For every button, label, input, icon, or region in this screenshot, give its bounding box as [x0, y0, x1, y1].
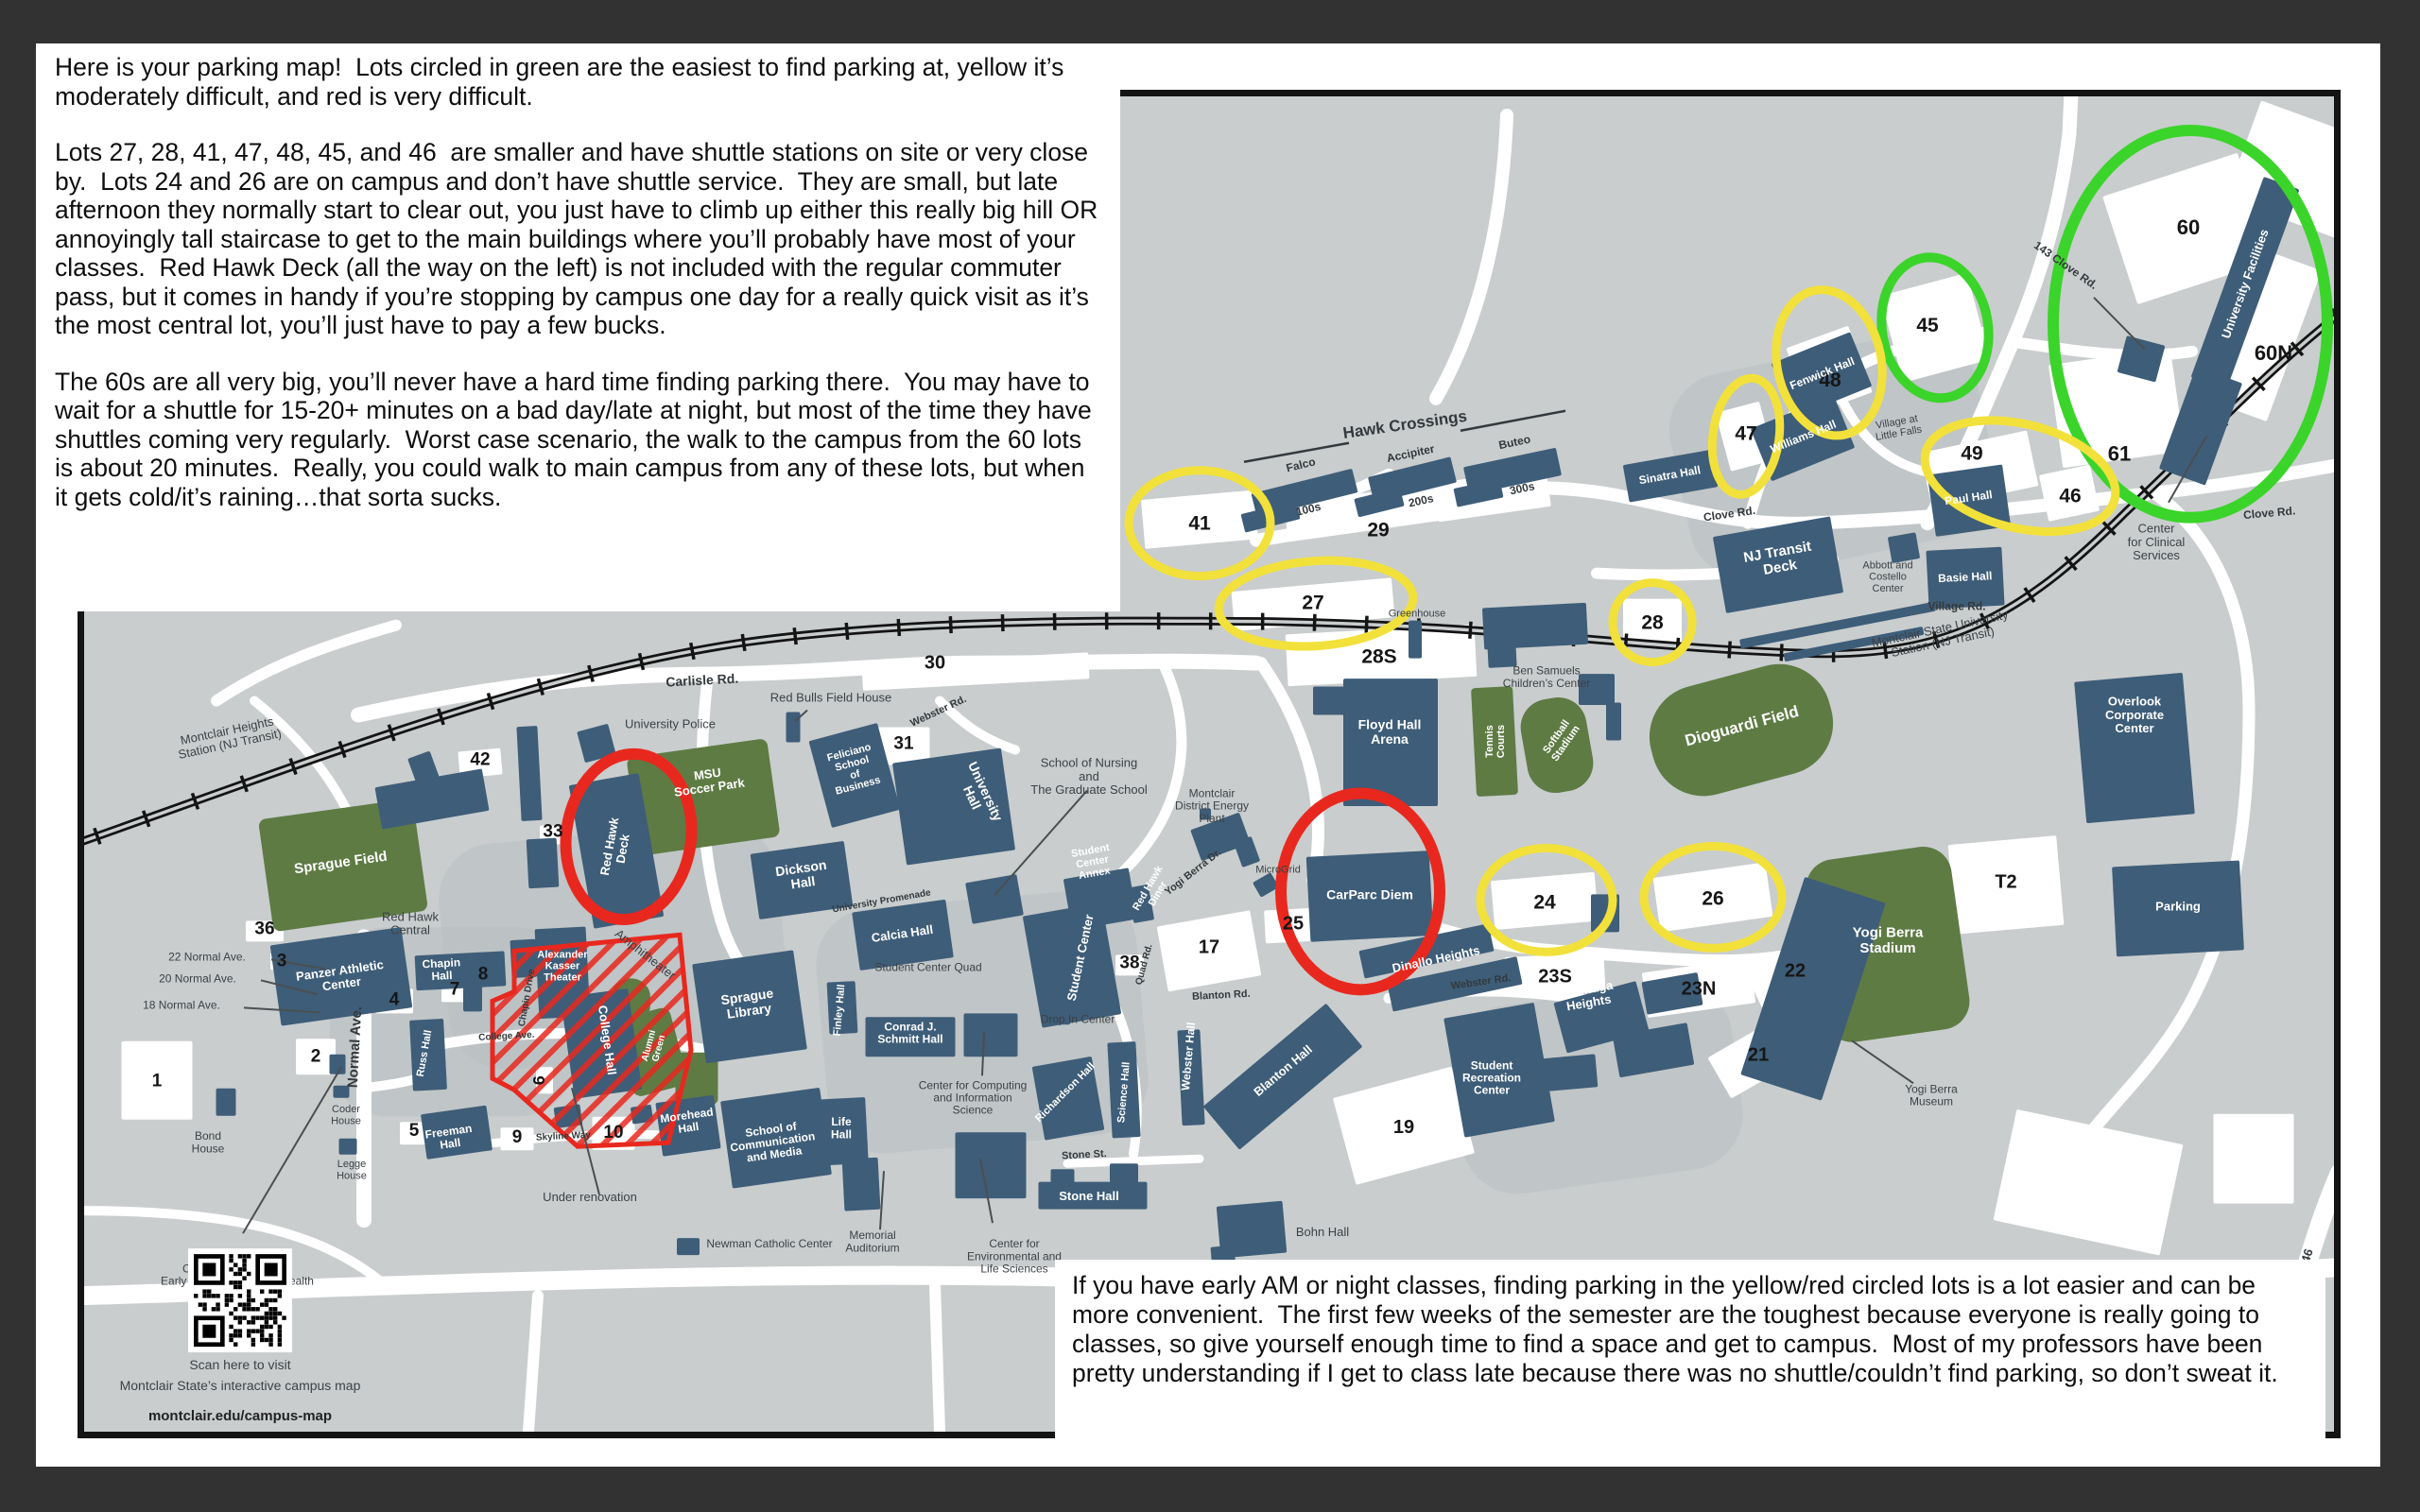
qr-module — [268, 1307, 272, 1311]
qr-module — [273, 1289, 277, 1293]
qr-module — [247, 1302, 251, 1306]
label-25: 25 — [1283, 913, 1304, 934]
qr-module — [265, 1338, 268, 1342]
qr-module — [238, 1285, 242, 1289]
qr-module — [265, 1312, 268, 1315]
qr-module — [233, 1333, 237, 1337]
qr-module — [247, 1320, 251, 1324]
qr-module — [202, 1294, 206, 1297]
qr-module — [278, 1333, 282, 1337]
qr-module — [273, 1307, 277, 1311]
qr-module — [216, 1294, 219, 1297]
label-yogi-berra: Yogi BerraMuseum — [1905, 1082, 1958, 1108]
building — [527, 838, 560, 889]
railroad-tie — [1470, 622, 1471, 639]
qr-module — [216, 1302, 219, 1306]
railroad-tie — [846, 623, 847, 640]
label-60: 60 — [2177, 215, 2200, 239]
note-top-left: Here is your parking map! Lots circled i… — [36, 43, 1120, 611]
label-microgrid: MicroGrid — [1255, 864, 1301, 875]
qr-module — [273, 1312, 277, 1315]
label-university-police: University Police — [625, 717, 716, 731]
qr-module — [229, 1325, 233, 1329]
label-memorial: MemorialAuditorium — [845, 1228, 899, 1254]
qr-module — [238, 1315, 242, 1319]
label-9: 9 — [512, 1127, 523, 1147]
qr-module — [242, 1315, 246, 1319]
qr-module — [229, 1338, 233, 1342]
building — [1051, 1169, 1075, 1186]
qr-module — [265, 1315, 268, 1319]
railroad-tie — [1314, 614, 1315, 631]
label-23s: 23S — [1538, 966, 1572, 987]
label-20-normal-ave: 20 Normal Ave. — [159, 971, 236, 985]
qr-module — [229, 1254, 233, 1258]
label-4: 4 — [389, 989, 400, 1009]
note-bottom-right: If you have early AM or night classes, f… — [1055, 1260, 2325, 1454]
qr-module — [238, 1329, 242, 1332]
note-paragraph: The 60s are all very big, you’ll never h… — [55, 368, 1101, 512]
label-newman-catholic-center: Newman Catholic Center — [706, 1237, 832, 1250]
qr-module — [273, 1315, 277, 1319]
qr-module — [278, 1294, 282, 1297]
qr-module — [247, 1294, 251, 1297]
label-parking: Parking — [2155, 899, 2201, 913]
label-41: 41 — [1188, 513, 1211, 535]
qr-module — [229, 1333, 233, 1337]
label-18-normal-ave: 18 Normal Ave. — [143, 998, 220, 1011]
label-29: 29 — [1367, 520, 1389, 541]
qr-module — [242, 1263, 246, 1266]
building — [677, 1238, 700, 1255]
qr-module — [251, 1320, 255, 1324]
qr-module — [212, 1294, 216, 1297]
label-24: 24 — [1533, 891, 1556, 913]
qr-module — [238, 1333, 242, 1337]
label-61: 61 — [2108, 442, 2131, 466]
qr-module — [229, 1294, 233, 1297]
label-46: 46 — [2059, 486, 2081, 507]
qr-module — [242, 1267, 246, 1271]
building — [1606, 703, 1621, 741]
building — [339, 1139, 357, 1155]
label-life: LifeHall — [831, 1115, 852, 1141]
qr-module — [260, 1325, 264, 1329]
qr-module — [268, 1325, 272, 1329]
qr-module — [278, 1312, 282, 1315]
qr-module — [278, 1325, 282, 1329]
qr-module — [242, 1276, 246, 1280]
label-t2: T2 — [1995, 871, 2016, 892]
label-3: 3 — [277, 951, 287, 971]
qr-module — [268, 1338, 272, 1342]
qr-module — [207, 1289, 211, 1293]
qr-module — [229, 1267, 233, 1271]
building — [1110, 1163, 1138, 1182]
qr-module — [233, 1315, 237, 1319]
label-under-renovation: Under renovation — [543, 1190, 637, 1204]
qr-module — [251, 1338, 255, 1342]
label-36: 36 — [254, 919, 274, 938]
label-coder: CoderHouse — [331, 1104, 361, 1126]
label-ben-samuels: Ben SamuelsChildren’s Center — [1503, 664, 1590, 690]
qr-module — [247, 1298, 251, 1302]
qr-module — [268, 1298, 272, 1302]
building — [965, 874, 1024, 924]
qr-module — [247, 1307, 251, 1311]
qr-module — [268, 1333, 272, 1337]
railroad-tie — [1002, 614, 1003, 631]
qr-module — [247, 1333, 251, 1337]
qr-module — [265, 1298, 268, 1302]
qr-module — [202, 1302, 206, 1306]
label-47: 47 — [1735, 423, 1756, 445]
building — [330, 1055, 346, 1074]
qr-module — [225, 1294, 229, 1297]
note-paragraph: Lots 27, 28, 41, 47, 48, 45, and 46 are … — [55, 138, 1101, 340]
parking-lot-shape — [2214, 1114, 2294, 1204]
note-paragraph: If you have early AM or night classes, f… — [1072, 1271, 2308, 1388]
building — [216, 1089, 236, 1116]
label-7: 7 — [450, 979, 460, 999]
qr-finder — [265, 1263, 278, 1276]
railroad-tie — [1781, 644, 1782, 661]
qr-module — [199, 1302, 202, 1306]
building — [1482, 603, 1588, 650]
railroad-tie — [950, 616, 951, 633]
qr-module — [251, 1315, 255, 1319]
qr-module — [265, 1302, 268, 1306]
qr-module — [255, 1315, 259, 1319]
paper-sheet: Hawk CrossingsFalcoAccipiterButeo100s200… — [36, 43, 2380, 1467]
qr-module — [229, 1280, 233, 1284]
qr-module — [278, 1338, 282, 1342]
qr-module — [260, 1338, 264, 1342]
label-22: 22 — [1785, 960, 1806, 981]
label-49: 49 — [1961, 443, 1982, 465]
building — [964, 1013, 1018, 1057]
railroad-tie — [1729, 642, 1730, 659]
qr-module — [242, 1307, 246, 1311]
label-23n: 23N — [1682, 978, 1717, 999]
railroad-tie — [794, 627, 796, 644]
qr-module — [238, 1272, 242, 1276]
qr-module — [229, 1312, 233, 1315]
building — [1888, 532, 1920, 563]
label-greenhouse: Greenhouse — [1389, 609, 1445, 620]
qr-module — [216, 1307, 219, 1311]
label-legge: LeggeHouse — [337, 1159, 367, 1181]
label-basie-hall: Basie Hall — [1938, 569, 1993, 585]
railroad-tie — [1366, 616, 1367, 633]
label-17: 17 — [1199, 936, 1219, 957]
qr-module — [225, 1298, 229, 1302]
qr-module — [233, 1329, 237, 1332]
label-10: 10 — [603, 1123, 623, 1143]
label-22-normal-ave: 22 Normal Ave. — [168, 950, 246, 963]
qr-finder — [202, 1325, 216, 1338]
qr-module — [260, 1289, 264, 1293]
qr-module — [251, 1307, 255, 1311]
qr-caption: Montclair State’s interactive campus map — [120, 1378, 361, 1393]
qr-module — [229, 1259, 233, 1263]
label-45: 45 — [1916, 315, 1939, 336]
qr-module — [194, 1294, 198, 1297]
qr-module — [255, 1329, 259, 1332]
qr-module — [260, 1302, 264, 1306]
label-tennis: TennisCourts — [1484, 725, 1507, 758]
qr-module — [233, 1285, 237, 1289]
building — [1313, 687, 1351, 715]
label-village-rd: Village Rd. — [1927, 600, 1985, 613]
qr-module — [238, 1302, 242, 1306]
qr-module — [278, 1289, 282, 1293]
qr-module — [251, 1342, 255, 1346]
qr-module — [238, 1254, 242, 1258]
qr-module — [278, 1342, 282, 1346]
qr-module — [207, 1294, 211, 1297]
building — [842, 1158, 881, 1211]
qr-module — [251, 1329, 255, 1332]
label-2: 2 — [311, 1046, 321, 1066]
qr-module — [233, 1342, 237, 1346]
qr-module — [278, 1329, 282, 1332]
qr-module — [242, 1259, 246, 1263]
qr-caption: Scan here to visit — [189, 1357, 290, 1372]
qr-module — [265, 1320, 268, 1324]
label-bohn-hall: Bohn Hall — [1296, 1225, 1349, 1239]
qr-module — [225, 1302, 229, 1306]
qr-module — [260, 1333, 264, 1337]
label-30: 30 — [925, 653, 945, 674]
qr-module — [273, 1298, 277, 1302]
label-stone-st: Stone St. — [1062, 1148, 1107, 1161]
label-28: 28 — [1641, 612, 1664, 634]
qr-module — [247, 1272, 251, 1276]
qr-module — [212, 1307, 216, 1311]
label-6: 6 — [529, 1075, 548, 1085]
note-paragraph: Here is your parking map! Lots circled i… — [55, 53, 1101, 111]
label-student-center-quad: Student Center Quad — [874, 960, 981, 973]
label-bond: BondHouse — [192, 1129, 225, 1155]
qr-finder — [202, 1263, 216, 1276]
qr-module — [238, 1294, 242, 1297]
label-60n: 60N — [2255, 341, 2292, 365]
qr-module — [233, 1280, 237, 1284]
building — [786, 713, 801, 743]
label-42: 42 — [470, 750, 490, 770]
label-5: 5 — [409, 1121, 420, 1141]
qr-module — [273, 1320, 277, 1324]
label-31: 31 — [893, 734, 914, 754]
qr-caption: montclair.edu/campus-map — [148, 1408, 332, 1424]
road — [935, 1284, 940, 1432]
label-19: 19 — [1393, 1117, 1414, 1138]
qr-module — [233, 1272, 237, 1276]
label-27: 27 — [1302, 593, 1323, 614]
qr-module — [268, 1342, 272, 1346]
qr-module — [282, 1315, 285, 1319]
qr-module — [202, 1307, 206, 1311]
qr-module — [233, 1307, 237, 1311]
qr-module — [247, 1254, 251, 1258]
building — [1409, 621, 1422, 659]
label-1: 1 — [152, 1071, 163, 1091]
qr-module — [229, 1298, 233, 1302]
qr-module — [233, 1263, 237, 1266]
label-red-bulls-field-house: Red Bulls Field House — [770, 691, 892, 705]
label-8: 8 — [478, 964, 489, 984]
qr-module — [238, 1280, 242, 1284]
qr-module — [242, 1254, 246, 1258]
qr-module — [247, 1289, 251, 1293]
qr-module — [268, 1315, 272, 1319]
qr-module — [247, 1329, 251, 1332]
qr-module — [260, 1315, 264, 1319]
qr-module — [255, 1307, 259, 1311]
qr-module — [265, 1325, 268, 1329]
qr-module — [202, 1289, 206, 1293]
label-yogi-berra: Yogi BerraStadium — [1853, 924, 1924, 955]
label-33: 33 — [543, 821, 562, 841]
building — [956, 1132, 1027, 1198]
label-carparc-diem: CarParc Diem — [1326, 886, 1413, 902]
label-conrad-j: Conrad J.Schmitt Hall — [877, 1020, 942, 1045]
qr-module — [238, 1320, 242, 1324]
qr-module — [268, 1289, 272, 1293]
qr-module — [242, 1302, 246, 1306]
qr-module — [268, 1312, 272, 1315]
qr-module — [260, 1329, 264, 1332]
label-drop-in-center: Drop In Center — [1041, 1012, 1115, 1025]
railroad-tie — [898, 619, 899, 636]
label-stone-hall: Stone Hall — [1059, 1189, 1119, 1203]
label-21: 21 — [1748, 1044, 1769, 1065]
label-28s: 28S — [1361, 646, 1396, 668]
label-26: 26 — [1702, 887, 1723, 909]
qr-module — [251, 1298, 255, 1302]
qr-module — [238, 1267, 242, 1271]
